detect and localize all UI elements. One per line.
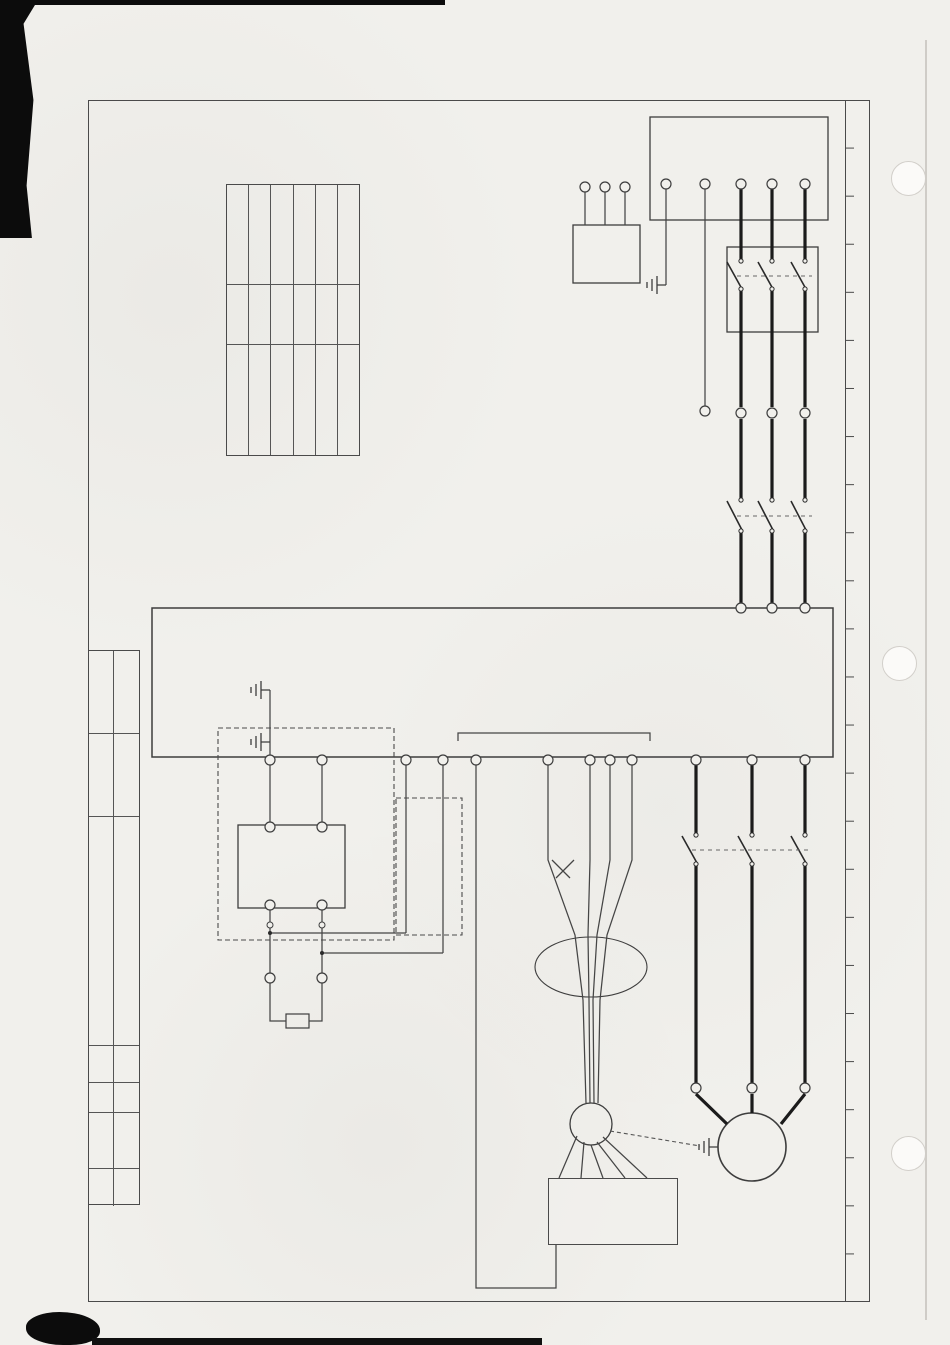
- wire-label-a: [582, 770, 594, 786]
- zone-letter-U: [847, 1062, 868, 1110]
- scan-edge-top-strip: [0, 0, 445, 5]
- brm-label: [238, 825, 345, 908]
- label-w1-kxx: [588, 156, 600, 182]
- ky-top-2: [808, 487, 817, 500]
- brake-resistor-title: [292, 1036, 320, 1130]
- zone-letter-J: [847, 533, 868, 581]
- label-pgb: [540, 726, 552, 756]
- label-pb: [399, 727, 411, 755]
- contact-point: [770, 498, 774, 502]
- ky-ref-3: [744, 538, 753, 594]
- terminal-circle: [736, 179, 746, 189]
- kk1-label-1: [813, 838, 824, 866]
- label-u1-kxx: [628, 156, 640, 182]
- connector-plus: [310, 918, 319, 930]
- wire-label-b: [540, 770, 552, 786]
- label-pe-term: [469, 729, 481, 753]
- contact-point: [770, 287, 774, 291]
- kk1-label-2: [760, 838, 771, 866]
- ky-ref-1: [808, 538, 817, 594]
- encoder-label: [584, 1109, 598, 1139]
- model-selection-table: [226, 184, 360, 456]
- model-table-row: [316, 185, 338, 455]
- inverter-model: [678, 626, 694, 748]
- title-block-design-label: [114, 1046, 139, 1082]
- contact-point: [739, 287, 743, 291]
- contact-point: [750, 833, 754, 837]
- kk1-label-3: [704, 838, 715, 866]
- ky-label-3: [749, 504, 760, 526]
- terminal-circle: [800, 755, 810, 765]
- breaker-q-label: [823, 277, 837, 295]
- paper-right-edge: [925, 40, 927, 1320]
- terminal-circle: [627, 755, 637, 765]
- contact-point: [694, 862, 698, 866]
- zone-letter-T: [847, 1014, 868, 1062]
- kxx-label: [573, 225, 640, 283]
- power-input-title: [742, 124, 804, 160]
- title-block-page-label: [114, 734, 139, 816]
- kk1-ref-2: [755, 872, 764, 926]
- zone-letter-H: [847, 437, 868, 485]
- ky-top-4: [775, 487, 784, 500]
- zone-letter-D: [847, 244, 868, 292]
- plug-connector-circle: [319, 922, 325, 928]
- terminal-circle: [661, 179, 671, 189]
- q-bottom-4: [775, 316, 784, 329]
- contact-point: [770, 529, 774, 533]
- title-block-designer: [89, 1083, 114, 1112]
- brake-resistor-symbol: [286, 1014, 309, 1028]
- zone-letter-A: [847, 100, 868, 148]
- contact-point: [739, 498, 743, 502]
- model-table-row: [227, 185, 249, 455]
- zone-letter-N: [847, 725, 868, 773]
- label-dc-plus: [314, 730, 326, 754]
- wire-junction-dot: [320, 951, 324, 955]
- model-table-row: [294, 185, 316, 455]
- label-u2: [810, 1062, 822, 1086]
- punch-hole-top: [891, 161, 926, 196]
- contact-point: [803, 287, 807, 291]
- terminal-circle: [767, 408, 777, 418]
- model-table-row: [338, 185, 359, 455]
- ky-label-2: [780, 504, 791, 526]
- label-u: [810, 736, 822, 753]
- label-r: [809, 615, 821, 632]
- title-block-version-label: [114, 1169, 139, 1206]
- zone-letter-B: [847, 148, 868, 196]
- terminal-circle: [736, 603, 746, 613]
- wire-label-p15v: [624, 770, 636, 804]
- brake-unit-size-note: [221, 770, 236, 902]
- zone-letter-O: [847, 773, 868, 821]
- terminal-circle: [747, 755, 757, 765]
- terminal-circle: [605, 755, 615, 765]
- title-block-date: [89, 651, 114, 733]
- terminal-circle: [265, 973, 275, 983]
- label-pga: [582, 726, 594, 756]
- zone-letter-P: [847, 821, 868, 869]
- label-n-mid: [710, 393, 723, 411]
- kk1-ref-1: [808, 872, 817, 926]
- label-s: [776, 615, 788, 632]
- terminal-circle: [800, 603, 810, 613]
- q-bottom-2: [808, 316, 817, 329]
- terminal-circle: [800, 179, 810, 189]
- wire-ref-kxx-3: [627, 193, 637, 223]
- label-pgm: [602, 726, 614, 756]
- title-block-company: [89, 817, 114, 1045]
- label-n: [710, 172, 723, 196]
- zone-letter-X: [847, 1206, 868, 1254]
- terminal-circle: [585, 755, 595, 765]
- wire-label-brake-p: [329, 948, 341, 966]
- terminal-circle: [317, 973, 327, 983]
- label-dc-minus: [262, 730, 274, 754]
- q-top-5: [744, 250, 753, 263]
- q-top-3: [775, 250, 784, 263]
- contact-point: [694, 833, 698, 837]
- title-block-note-label: [89, 1046, 114, 1082]
- label-pe: [671, 170, 684, 198]
- terminal-circle: [265, 755, 275, 765]
- title-block-note: [89, 1113, 114, 1168]
- kk1-ref-3: [699, 872, 708, 926]
- zone-letter-I: [847, 485, 868, 533]
- resistor-code: [298, 984, 309, 1014]
- terminal-circle: [747, 1083, 757, 1093]
- wire-ref-w1: [744, 423, 753, 459]
- notes-1-3: [381, 163, 463, 465]
- label-l1: [810, 168, 823, 200]
- contact-point: [803, 862, 807, 866]
- title-block-check-label: [114, 1113, 139, 1168]
- model-table-row: [249, 185, 271, 455]
- q-top-1: [808, 250, 817, 263]
- terminal-circle: [691, 1083, 701, 1093]
- contact-point: [803, 259, 807, 263]
- motor-label: [740, 1121, 765, 1173]
- brm-plus-mark: [327, 804, 337, 818]
- title-block-version: [89, 1169, 114, 1206]
- wire-ref-kxx-2: [607, 193, 617, 223]
- terminal-circle: [438, 755, 448, 765]
- cable-shield-ellipse: [535, 937, 647, 997]
- contact-point: [739, 529, 743, 533]
- terminal-circle: [401, 755, 411, 765]
- terminal-circle: [767, 179, 777, 189]
- terminal-circle: [800, 408, 810, 418]
- label-u1-mid: [810, 391, 823, 415]
- wire-ref-kxx-1: [587, 193, 597, 223]
- contact-point: [803, 498, 807, 502]
- title-block-page: [89, 734, 114, 816]
- scanned-schematic-page: [0, 0, 950, 1345]
- wire-junction-dot: [268, 931, 272, 935]
- terminal-circle: [317, 755, 327, 765]
- with-brake-unit-label: [347, 787, 374, 919]
- wire-ref-u1: [808, 423, 817, 475]
- inverter-name: [704, 644, 731, 728]
- terminal-circle: [800, 1083, 810, 1093]
- zone-letter-L: [847, 629, 868, 677]
- zone-letter-W: [847, 1158, 868, 1206]
- zone-letter-K: [847, 581, 868, 629]
- tb3-terminal-table: [548, 1178, 678, 1245]
- label-l2: [777, 168, 790, 200]
- contact-point: [803, 529, 807, 533]
- kk1-top-5: [699, 816, 708, 829]
- title-block: [88, 650, 140, 1205]
- ky-ref-2: [775, 538, 784, 594]
- terminal-circle: [767, 603, 777, 613]
- label-w: [701, 736, 713, 753]
- terminal-circle: [691, 755, 701, 765]
- label-w1-mid: [746, 391, 759, 415]
- kk1-top-1: [808, 816, 817, 829]
- model-table-row: [271, 185, 293, 455]
- terminal-circle: [543, 755, 553, 765]
- label-v1-mid: [777, 391, 790, 415]
- connector-minus: [258, 918, 267, 930]
- label-v1-kxx: [608, 156, 620, 182]
- terminal-circle: [700, 179, 710, 189]
- ky-top-6: [744, 487, 753, 500]
- shield-drain-dashed-wire: [610, 1131, 700, 1146]
- zone-letter-F: [847, 340, 868, 388]
- wire-ref-v1: [775, 423, 784, 475]
- zone-letter-R: [847, 917, 868, 965]
- zone-letter-G: [847, 388, 868, 436]
- label-l3: [746, 168, 759, 200]
- zone-letter-C: [847, 196, 868, 244]
- contact-point: [770, 259, 774, 263]
- terminal-circle: [580, 182, 590, 192]
- title-block-date-label: [114, 651, 139, 733]
- punch-hole-middle: [882, 646, 917, 681]
- punch-hole-bottom: [891, 1136, 926, 1171]
- label-w2: [701, 1062, 713, 1086]
- zone-letter-M: [847, 677, 868, 725]
- plug-connector-circle: [267, 922, 273, 928]
- contact-point: [750, 862, 754, 866]
- scan-edge-bottom-blob: [26, 1312, 100, 1345]
- zone-letter-E: [847, 292, 868, 340]
- title-block-empty: [114, 1083, 139, 1112]
- terminal-circle: [600, 182, 610, 192]
- zone-letter-Q: [847, 869, 868, 917]
- wire-ref-n: [708, 420, 717, 450]
- label-15v: [624, 726, 636, 756]
- ky-label-1: [813, 504, 824, 526]
- title-block-title: [114, 817, 139, 1045]
- kk1-top-3: [755, 816, 764, 829]
- terminal-circle: [736, 408, 746, 418]
- label-plus-term: [436, 726, 448, 754]
- wire-label-0v: [602, 770, 614, 794]
- q-bottom-6: [744, 316, 753, 329]
- wire-label-brake-b: [275, 948, 287, 966]
- wiring-diagram-canvas: [0, 0, 950, 1345]
- terminal-circle: [620, 182, 630, 192]
- label-t: [745, 615, 757, 632]
- contact-point: [739, 259, 743, 263]
- contact-point: [803, 833, 807, 837]
- terminal-circle: [471, 755, 481, 765]
- zone-letter-V: [847, 1110, 868, 1158]
- scan-edge-bottom-strip: [92, 1338, 542, 1345]
- terminal-circle: [700, 406, 710, 416]
- label-v2: [757, 1062, 769, 1086]
- notes-4-5: [183, 166, 223, 466]
- without-brake-unit-label: [414, 810, 432, 928]
- label-v: [757, 736, 769, 753]
- zone-letter-Y: [847, 1254, 868, 1302]
- zone-letter-S: [847, 965, 868, 1013]
